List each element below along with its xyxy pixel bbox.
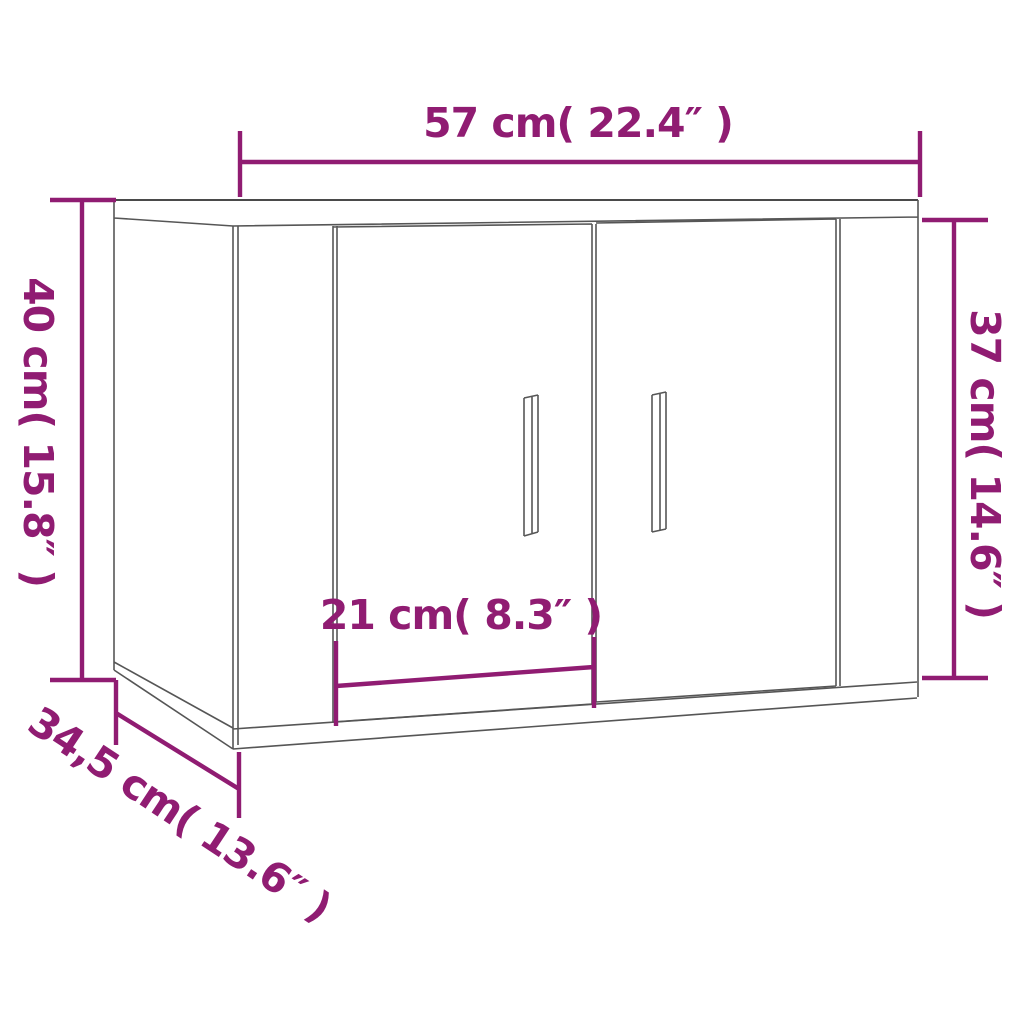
dimension-left-height-label: 40 cm( 15.8″ ): [14, 277, 62, 587]
dimension-right-height-label: 37 cm( 14.6″ ): [961, 309, 1009, 619]
right-door-handle: [652, 392, 666, 532]
dimension-left-height: 40 cm( 15.8″ ): [14, 200, 116, 680]
dimension-door-width-label: 21 cm( 8.3″ ): [320, 591, 602, 639]
dimension-width-label: 57 cm( 22.4″ ): [423, 99, 733, 147]
dimension-width: 57 cm( 22.4″ ): [240, 99, 920, 197]
cabinet-drawing: [114, 200, 918, 749]
cabinet-carcass-outline: [114, 200, 918, 749]
product-dimension-diagram: 57 cm( 22.4″ ) 40 cm( 15.8″ ) 37 cm( 14.…: [0, 0, 1024, 1024]
dimension-right-height: 37 cm( 14.6″ ): [922, 220, 1009, 678]
dimension-depth: 34,5 cm( 13.6″ ): [20, 680, 340, 931]
left-door-handle: [524, 395, 538, 536]
dimension-depth-label: 34,5 cm( 13.6″ ): [20, 697, 340, 931]
cabinet-doors-outline: [333, 219, 840, 722]
dimension-diagram-canvas: 57 cm( 22.4″ ) 40 cm( 15.8″ ) 37 cm( 14.…: [0, 0, 1024, 1024]
